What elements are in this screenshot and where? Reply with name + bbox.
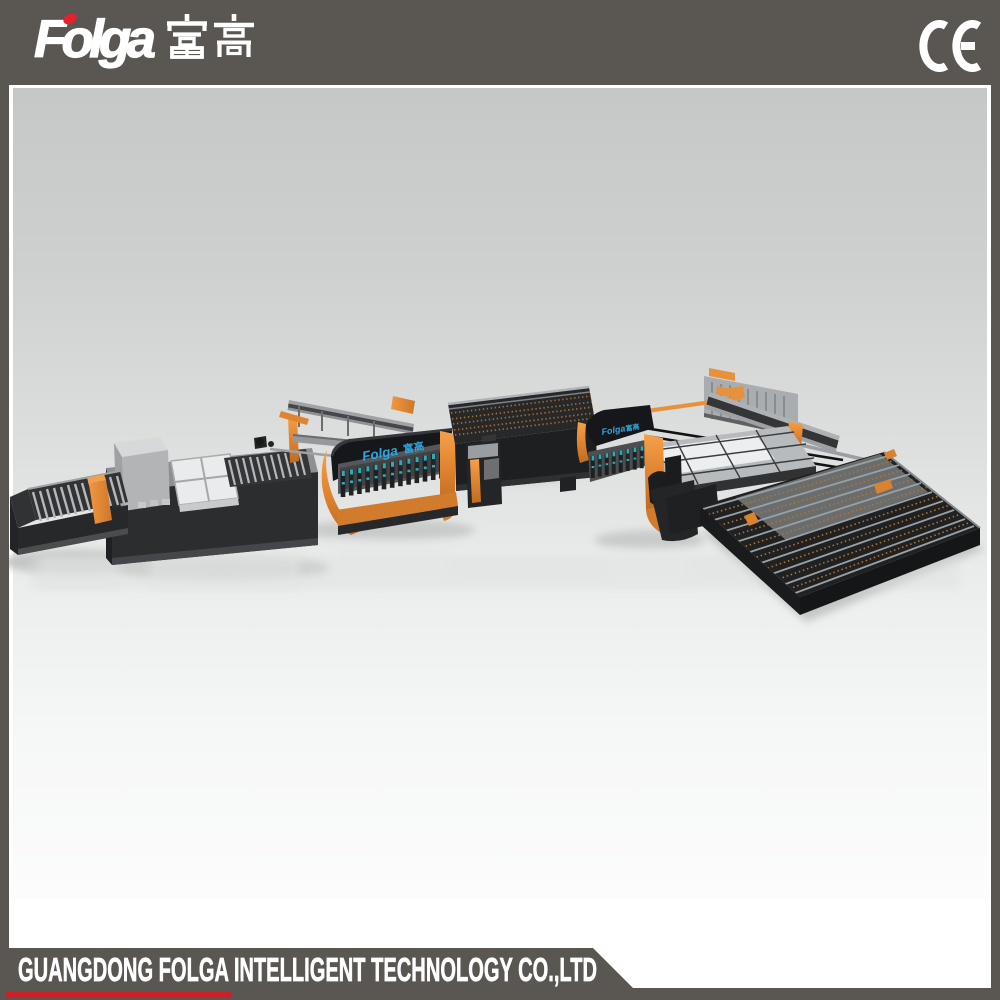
svg-text:GUANGDONG FOLGA INTELLIGENT TE: GUANGDONG FOLGA INTELLIGENT TECHNOLOGY C…: [18, 951, 597, 988]
svg-text:Folga: Folga: [34, 10, 156, 69]
